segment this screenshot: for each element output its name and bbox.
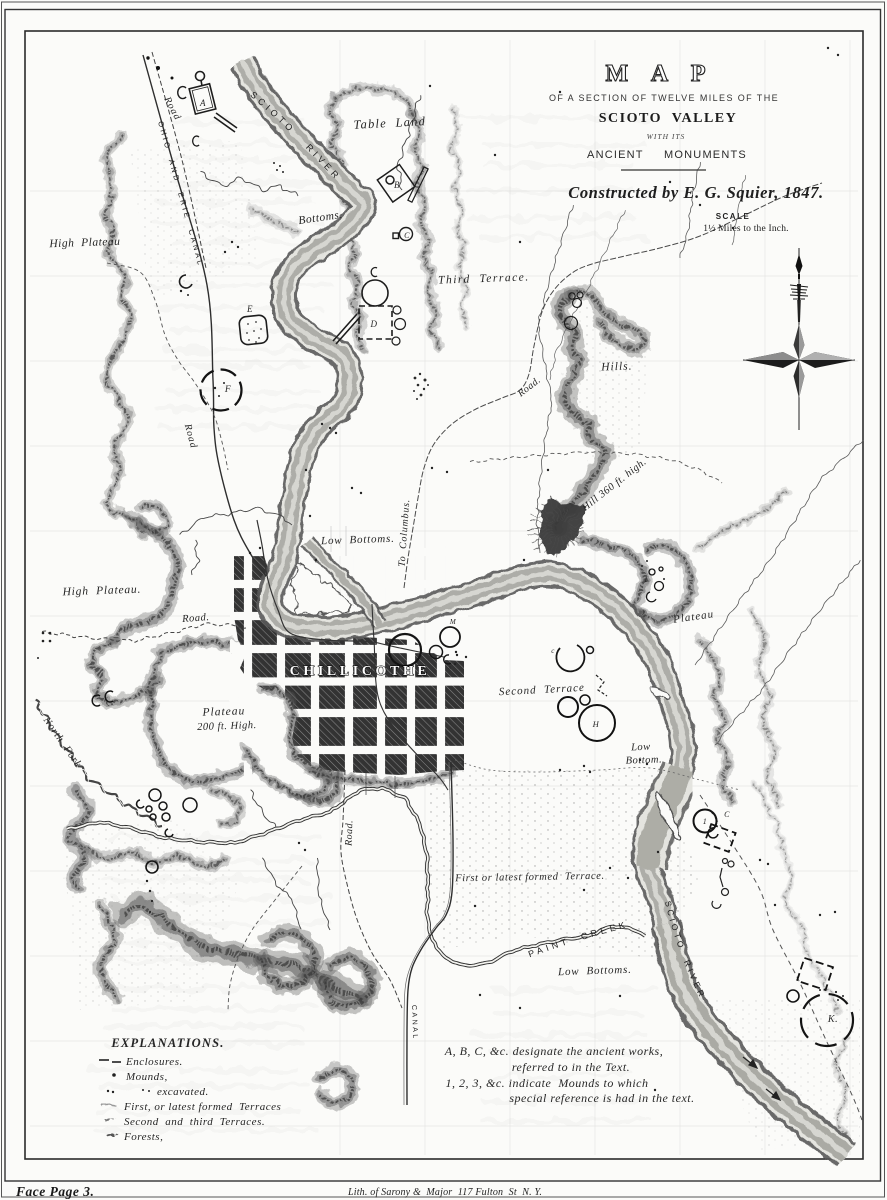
svg-text:Constructed by E. G. Squier, 1: Constructed by E. G. Squier, 1847.	[568, 183, 824, 202]
svg-text:SCIOTO VALLEY: SCIOTO VALLEY	[599, 111, 738, 126]
svg-text:Hills.: Hills.	[600, 360, 633, 373]
svg-text:Enclosures.: Enclosures.	[125, 1056, 183, 1068]
svg-text:D: D	[370, 319, 378, 329]
svg-text:Low: Low	[630, 742, 651, 754]
svg-text:WITH ITS: WITH ITS	[647, 132, 686, 141]
svg-text:F: F	[224, 385, 231, 395]
svg-text:SCALE: SCALE	[716, 212, 751, 221]
svg-text:Road.: Road.	[181, 612, 210, 625]
svg-text:1½ Miles to the Inch.: 1½ Miles to the Inch.	[703, 223, 788, 234]
svg-text:Mounds,: Mounds,	[125, 1071, 168, 1083]
svg-text:excavated.: excavated.	[157, 1086, 209, 1098]
svg-text:L: L	[644, 575, 650, 584]
svg-text:CANAL: CANAL	[410, 1005, 418, 1041]
svg-text:Face Page 3.: Face Page 3.	[15, 1184, 94, 1199]
svg-text:M: M	[449, 618, 457, 626]
svg-text:K.: K.	[827, 1014, 838, 1025]
svg-text:ANCIENT MONUMENTS: ANCIENT MONUMENTS	[587, 149, 747, 161]
svg-text:E: E	[246, 304, 253, 314]
svg-text:s: s	[448, 664, 451, 671]
svg-text:B: B	[394, 180, 400, 190]
svg-text:Second and third Terraces.: Second and third Terraces.	[124, 1116, 265, 1128]
svg-text:EXPLANATIONS.: EXPLANATIONS.	[110, 1036, 224, 1050]
svg-text:OF A SECTION OF TWELVE MILES O: OF A SECTION OF TWELVE MILES OF THE	[549, 93, 779, 103]
svg-text:Forests,: Forests,	[123, 1131, 163, 1143]
svg-text:c: c	[551, 647, 555, 655]
svg-text:referred to in the Text.: referred to in the Text.	[512, 1060, 630, 1074]
svg-text:C: C	[404, 231, 410, 240]
svg-text:High Plateau: High Plateau	[48, 236, 120, 251]
svg-text:1, 2, 3, &c. indicate Mounds: 1, 2, 3, &c. indicate Mounds to which	[446, 1076, 649, 1090]
svg-text:Bottom.: Bottom.	[625, 754, 662, 766]
svg-text:Road.: Road.	[344, 820, 356, 847]
svg-text:First, or latest formed Terra: First, or latest formed Terraces	[123, 1101, 281, 1113]
svg-text:CHILLICOTHE: CHILLICOTHE	[290, 664, 431, 679]
svg-text:special reference is had in th: special reference is had in the text.	[509, 1091, 694, 1105]
svg-text:H: H	[592, 719, 600, 729]
svg-text:M A P: M A P	[606, 61, 715, 87]
svg-text:A, B, C, &c. designate the anc: A, B, C, &c. designate the ancient works…	[444, 1044, 663, 1058]
svg-text:A: A	[199, 98, 206, 108]
svg-text:200 ft. High.: 200 ft. High.	[197, 720, 257, 733]
svg-text:Lith. of Sarony & Major 117: Lith. of Sarony & Major 117 Fulton St N.…	[347, 1187, 542, 1198]
svg-text:C: C	[724, 810, 730, 819]
svg-text:Plateau: Plateau	[201, 705, 245, 719]
svg-text:1: 1	[703, 817, 708, 826]
